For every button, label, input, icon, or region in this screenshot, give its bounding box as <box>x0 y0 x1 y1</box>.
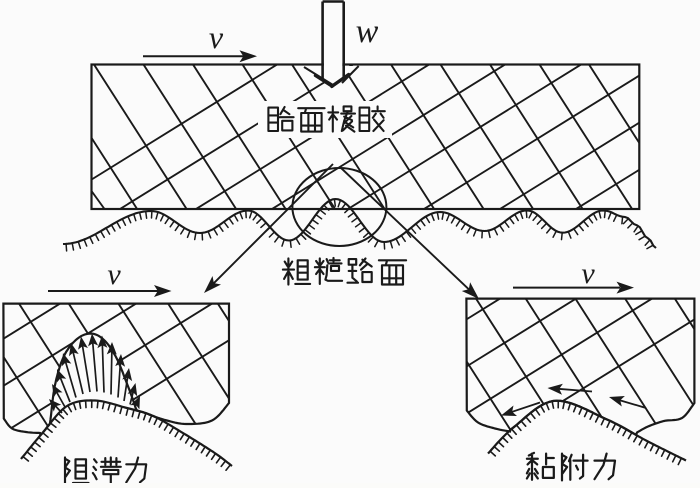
svg-text:w: w <box>356 13 379 50</box>
svg-text:v: v <box>581 257 595 290</box>
svg-text:v: v <box>107 258 121 291</box>
svg-text:v: v <box>209 19 224 55</box>
